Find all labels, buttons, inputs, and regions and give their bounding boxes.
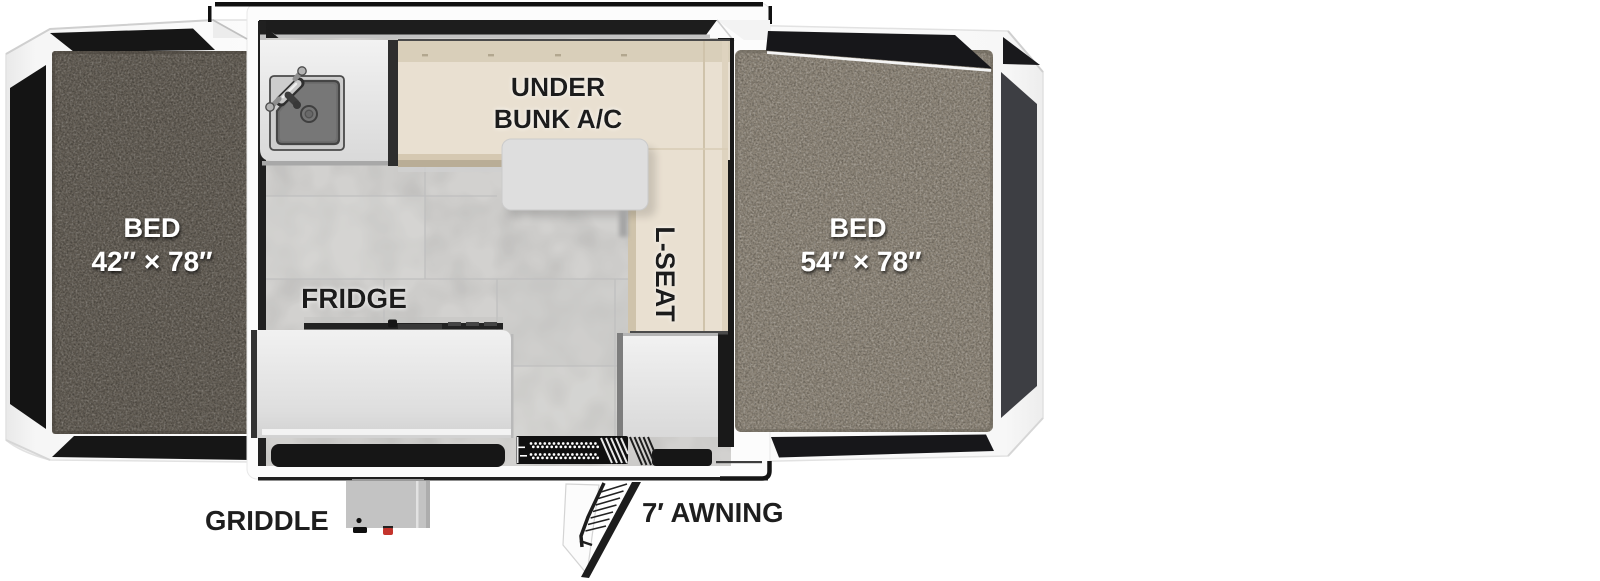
svg-text:BUNK A/C: BUNK A/C: [494, 104, 623, 134]
svg-text:GRIDDLE: GRIDDLE: [205, 505, 329, 536]
svg-text:FRIDGE: FRIDGE: [301, 283, 407, 314]
svg-text:UNDER: UNDER: [511, 72, 605, 102]
svg-text:BED: BED: [123, 213, 180, 243]
svg-text:L-SEAT: L-SEAT: [650, 226, 680, 322]
svg-text:42″ × 78″: 42″ × 78″: [91, 246, 212, 277]
svg-text:54″ × 78″: 54″ × 78″: [800, 246, 921, 277]
svg-text:BED: BED: [829, 213, 886, 243]
svg-text:7′ AWNING: 7′ AWNING: [642, 497, 784, 528]
